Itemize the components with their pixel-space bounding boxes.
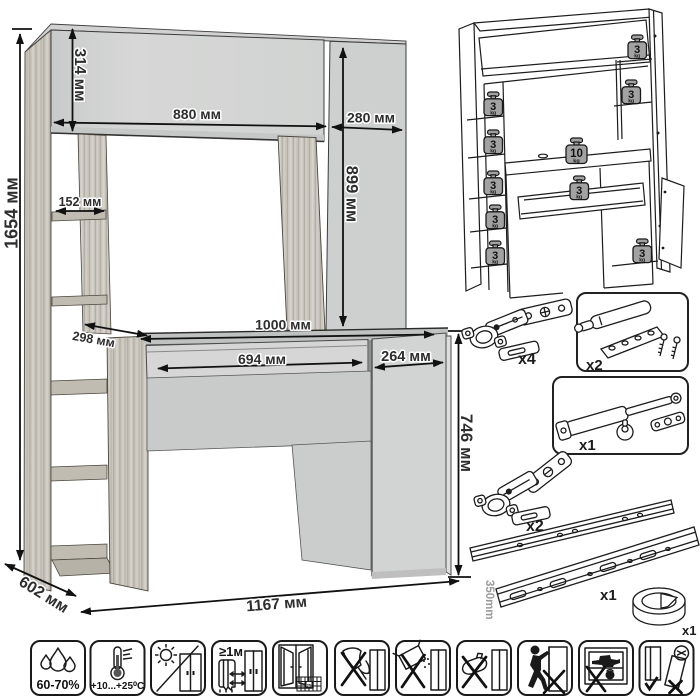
svg-text:350mm: 350mm	[483, 580, 495, 620]
svg-text:880 мм: 880 мм	[173, 106, 221, 122]
svg-text:≥1м: ≥1м	[219, 644, 243, 659]
svg-text:899 мм: 899 мм	[343, 166, 361, 223]
svg-text:694 мм: 694 мм	[238, 351, 286, 367]
svg-text:kg: kg	[573, 159, 579, 165]
svg-text:1167 мм: 1167 мм	[246, 594, 308, 616]
svg-text:x2: x2	[586, 357, 603, 374]
svg-text:x1: x1	[682, 623, 696, 638]
svg-text:746 мм: 746 мм	[457, 414, 476, 472]
svg-text:x1: x1	[600, 587, 617, 604]
svg-text:60-70%: 60-70%	[36, 678, 79, 692]
svg-text:1654 мм: 1654 мм	[2, 177, 22, 249]
svg-text:152 мм: 152 мм	[59, 195, 102, 209]
svg-text:+10...+25⁰C: +10...+25⁰C	[91, 681, 145, 692]
svg-text:x1: x1	[579, 437, 596, 454]
svg-text:314 мм: 314 мм	[71, 48, 88, 101]
svg-text:1000 мм: 1000 мм	[255, 317, 311, 333]
svg-text:x4: x4	[518, 351, 536, 368]
svg-text:280 мм: 280 мм	[347, 110, 395, 126]
svg-text:264 мм: 264 мм	[381, 349, 431, 365]
svg-text:25: 25	[306, 683, 312, 688]
